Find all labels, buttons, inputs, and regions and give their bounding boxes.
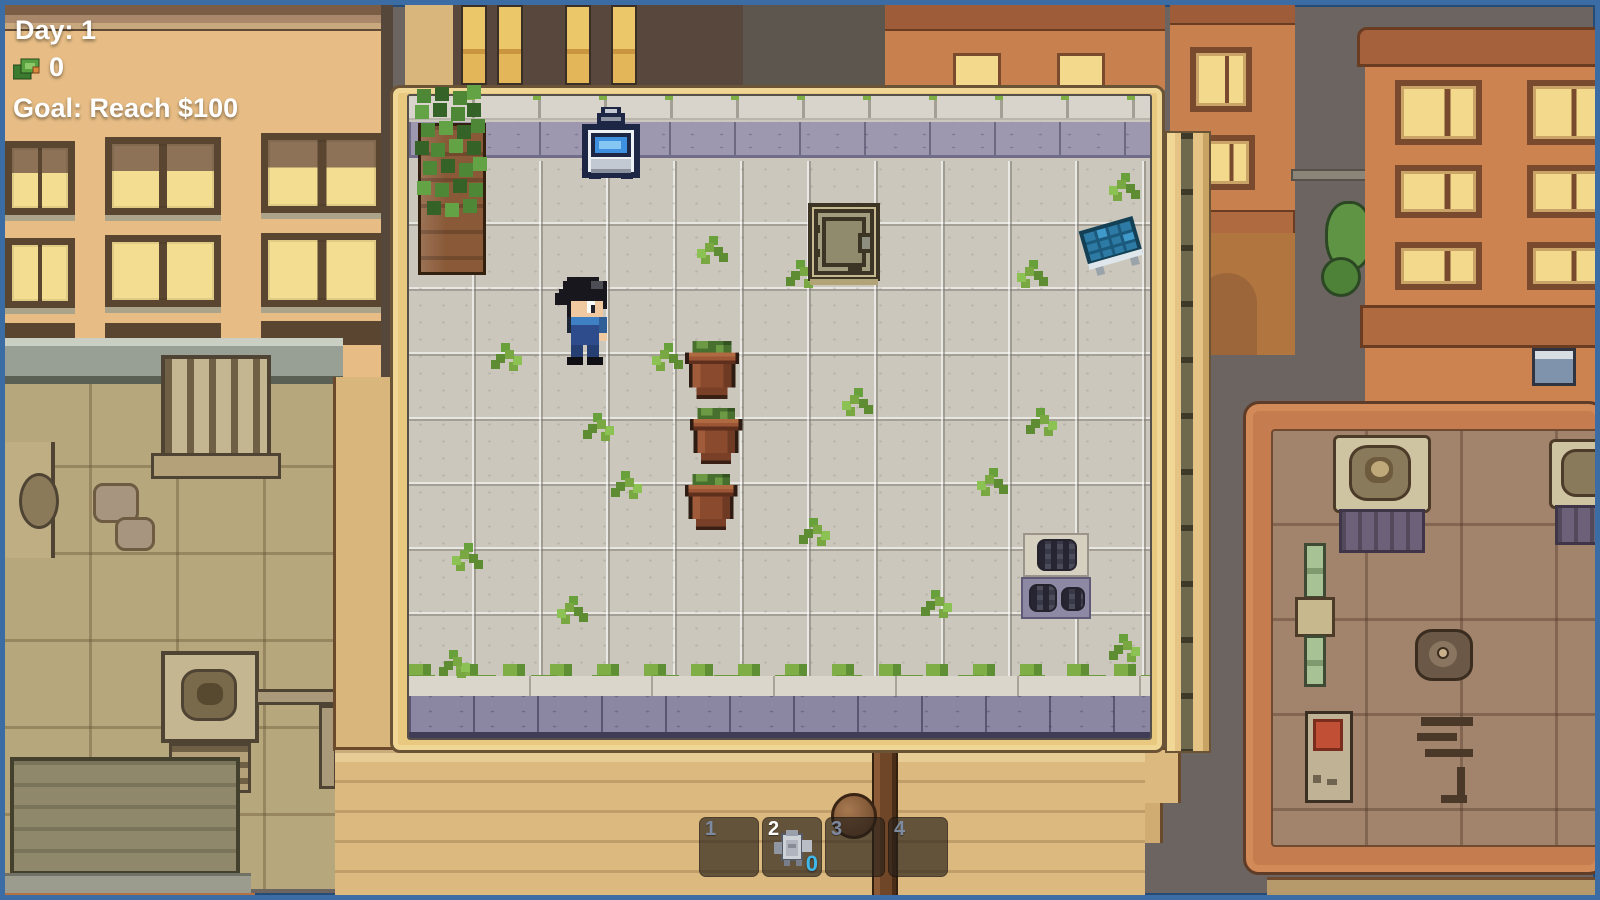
rooftop-ledge [5, 873, 251, 895]
rooftop-pipe [255, 689, 337, 705]
building-roof-lip [1170, 5, 1295, 25]
building-window [1395, 165, 1482, 218]
ac-unit-base [151, 453, 281, 479]
parapet-moss [409, 96, 1150, 100]
backdrop-wall [405, 5, 453, 90]
item-count: 0 [806, 851, 818, 877]
building-roof-band [1357, 27, 1600, 67]
clay-pot[interactable] [681, 337, 743, 403]
clay-pot[interactable] [681, 469, 741, 535]
weed-tuft [813, 525, 822, 534]
building-window [1527, 165, 1600, 218]
backdrop-roof-band [885, 5, 1165, 31]
money-icon [13, 57, 43, 81]
player-character[interactable] [551, 277, 615, 365]
weed-tuft [985, 475, 994, 484]
backdrop-gap [743, 5, 885, 90]
lower-roof-strip [1267, 877, 1600, 900]
clay-pot[interactable] [686, 403, 746, 469]
weed-tuft [935, 597, 944, 606]
slot-number: 1 [705, 818, 716, 841]
weed-tuft [850, 395, 859, 404]
hotbar-slot-1[interactable]: 1 [699, 817, 759, 877]
wall-pipe [1181, 133, 1193, 751]
parapet-wall [409, 122, 1150, 158]
weed-tuft [1040, 415, 1049, 424]
building-window [1057, 53, 1105, 89]
building-window [1395, 242, 1482, 290]
warning-panel [1313, 719, 1343, 751]
roof-marking [1441, 795, 1467, 803]
weed-tuft [625, 478, 634, 487]
fan-hub [1371, 461, 1389, 477]
wall-vent-blue [1532, 348, 1576, 386]
weed-tuft [1025, 267, 1034, 276]
game-viewport: 1 2 0 3 4 Day: 1 [0, 0, 1600, 900]
green-pipe [1304, 543, 1326, 599]
roof-marking [1425, 749, 1473, 757]
weed-tuft [453, 657, 462, 666]
ac-unit-slatted [161, 355, 271, 459]
broken-facade-block [1145, 747, 1181, 803]
hotbar-slot-3[interactable]: 3 [825, 817, 885, 877]
building-window [1527, 242, 1600, 290]
lower-roof-strip [5, 893, 255, 900]
fan-grill [1029, 584, 1057, 612]
building-window [261, 133, 383, 213]
goal-text: Goal: Reach $100 [13, 93, 238, 124]
fan-grill [1061, 587, 1085, 611]
building-window [953, 53, 1001, 89]
slot-number: 4 [894, 818, 905, 841]
weed-tuft [1117, 180, 1126, 189]
tall-window [497, 5, 523, 85]
building-window [5, 141, 75, 215]
fan-grill [1037, 539, 1077, 571]
building-window [5, 238, 75, 308]
ac-unit-base [1555, 505, 1600, 545]
hotbar-slot-4[interactable]: 4 [888, 817, 948, 877]
roof-hatch[interactable] [808, 201, 880, 285]
slot-number: 3 [831, 818, 842, 841]
weed-tuft [1123, 641, 1132, 650]
building-window [1527, 80, 1600, 145]
broken-facade-block [1145, 803, 1163, 843]
fan-circle [19, 473, 59, 529]
building-window [1190, 47, 1252, 112]
bottom-parapet-wall [409, 696, 1150, 738]
roof-vent-upper[interactable] [1023, 533, 1089, 577]
building-ledge [1360, 305, 1600, 348]
weed-tuft [565, 603, 574, 612]
roof-marking [1421, 717, 1473, 726]
weed-tuft [505, 350, 514, 359]
roof-marking [1417, 733, 1457, 741]
weed-tuft [705, 243, 714, 252]
vent-hub [1437, 647, 1449, 659]
weed-tuft [597, 420, 606, 429]
panel-detail [1327, 779, 1337, 785]
tall-window [461, 5, 487, 85]
panel-detail [1313, 775, 1321, 783]
main-building-side-wall [1165, 131, 1211, 753]
tall-window [565, 5, 591, 85]
bottom-parapet-cap [409, 676, 1150, 696]
weed-tuft [460, 550, 469, 559]
fan-core [197, 683, 223, 705]
hotbar: 1 2 0 3 4 [699, 817, 951, 881]
weed-tuft [660, 350, 669, 359]
ivy-foliage [417, 89, 431, 103]
alley-walkway [1291, 169, 1375, 181]
green-pipe [1304, 635, 1326, 687]
rooftop-debris [115, 517, 155, 551]
building-window [261, 233, 383, 307]
building-window [1395, 80, 1482, 145]
day-counter: Day: 1 [15, 15, 96, 46]
fan-circle [1561, 449, 1600, 497]
tall-window [611, 5, 637, 85]
building-window [105, 137, 221, 215]
hotbar-slot-2[interactable]: 2 0 [762, 817, 822, 877]
roof-vent-lower[interactable] [1021, 577, 1091, 619]
money-value: 0 [49, 52, 64, 83]
solar-panel[interactable] [1073, 205, 1149, 281]
street-tree-base [1321, 257, 1361, 297]
pipe-joint [1295, 597, 1335, 637]
ac-unit-base [1339, 509, 1425, 553]
ivy-planter[interactable] [418, 123, 486, 275]
large-vent-panel [10, 757, 240, 875]
sell-terminal[interactable] [579, 107, 641, 179]
building-window [105, 235, 221, 307]
